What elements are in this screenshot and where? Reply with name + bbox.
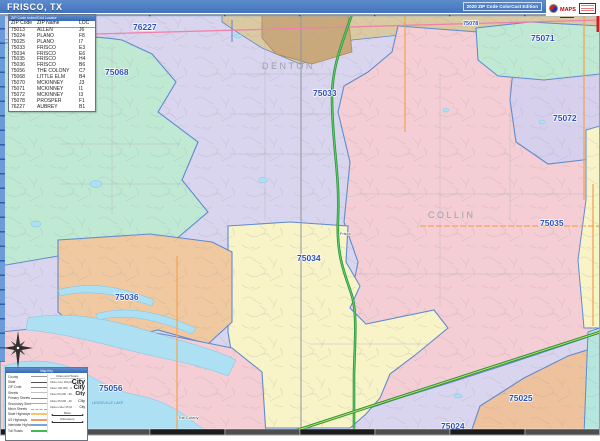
edition-label: 2020 ZIP Code ColorCast Edition xyxy=(463,2,542,11)
water-label-lewisville-lake: LEWISVILLE LAKE xyxy=(92,401,124,405)
legend-item: Toll Roads xyxy=(8,428,47,433)
legend-line-items: County State ZIP Code Streets Primary St… xyxy=(8,374,47,433)
county-line-sample xyxy=(31,376,47,377)
zip-label-75034: 75034 xyxy=(297,253,321,263)
toll-road-sample xyxy=(31,430,47,432)
legend-body: County State ZIP Code Streets Primary St… xyxy=(6,373,87,434)
brand-logo: MAPS xyxy=(546,0,600,16)
frisco-zip-code-wall-map: { "header": { "title": "FRISCO, TX", "ed… xyxy=(0,0,600,441)
minor-streets-sample xyxy=(31,409,47,410)
brand-underline xyxy=(560,17,574,18)
scale-bar-miles: Miles xyxy=(50,412,85,416)
kilometers-scale-line xyxy=(52,422,83,423)
state-line-sample xyxy=(31,382,47,383)
interstate-sample xyxy=(31,424,47,426)
zip-label-76227: 76227 xyxy=(133,22,157,32)
legend-city-column: Cities and Towns Cities over 250,000City… xyxy=(47,374,85,433)
header-bar: FRISCO, TX 2020 ZIP Code ColorCast Editi… xyxy=(0,0,546,13)
zip-line-sample xyxy=(31,387,47,388)
zip-label-75033: 75033 xyxy=(313,88,337,98)
zip-label-75068: 75068 xyxy=(105,67,129,77)
zip-label-75025: 75025 xyxy=(509,393,533,403)
compass-star xyxy=(3,331,33,369)
zip-label-75071: 75071 xyxy=(531,33,555,43)
zip-label-75036: 75036 xyxy=(115,292,139,302)
miles-scale-line xyxy=(52,415,83,416)
us-highway-sample xyxy=(31,419,47,421)
scale-bar-kilometers: Kilometers xyxy=(50,418,85,422)
secondary-streets-sample xyxy=(31,403,47,404)
primary-streets-sample xyxy=(31,398,47,399)
zip-label-75078: 75078 xyxy=(463,21,478,27)
zip-label-75072: 75072 xyxy=(553,113,577,123)
city-item: Cities under 25,000City xyxy=(50,404,85,410)
county-label-collin: COLLIN xyxy=(428,210,476,220)
legend-panel: Map Key County State ZIP Code Streets Pr… xyxy=(5,367,88,441)
state-highway-sample xyxy=(31,413,47,415)
left-neatline xyxy=(0,15,5,362)
town-label-frisco: Frisco xyxy=(340,231,352,236)
zip-index-panel: ZIP Code Index/Grid Locator ZIP Code ZIP… xyxy=(8,14,96,112)
map-title: FRISCO, TX xyxy=(7,2,63,12)
brand-text-wrap: MAPS xyxy=(560,0,576,18)
bottom-ruler xyxy=(0,429,600,435)
table-row: 76227AUBREYB1 xyxy=(9,105,95,111)
zip-label-75056: 75056 xyxy=(99,383,123,393)
globe-icon xyxy=(549,4,558,13)
town-label-the-colony: The Colony xyxy=(178,415,198,420)
brand-text: MAPS xyxy=(560,7,576,13)
order-info-box xyxy=(579,3,596,14)
streets-line-sample xyxy=(31,392,47,393)
county-label-denton: DENTON xyxy=(262,61,315,71)
zip-label-75035: 75035 xyxy=(540,218,564,228)
